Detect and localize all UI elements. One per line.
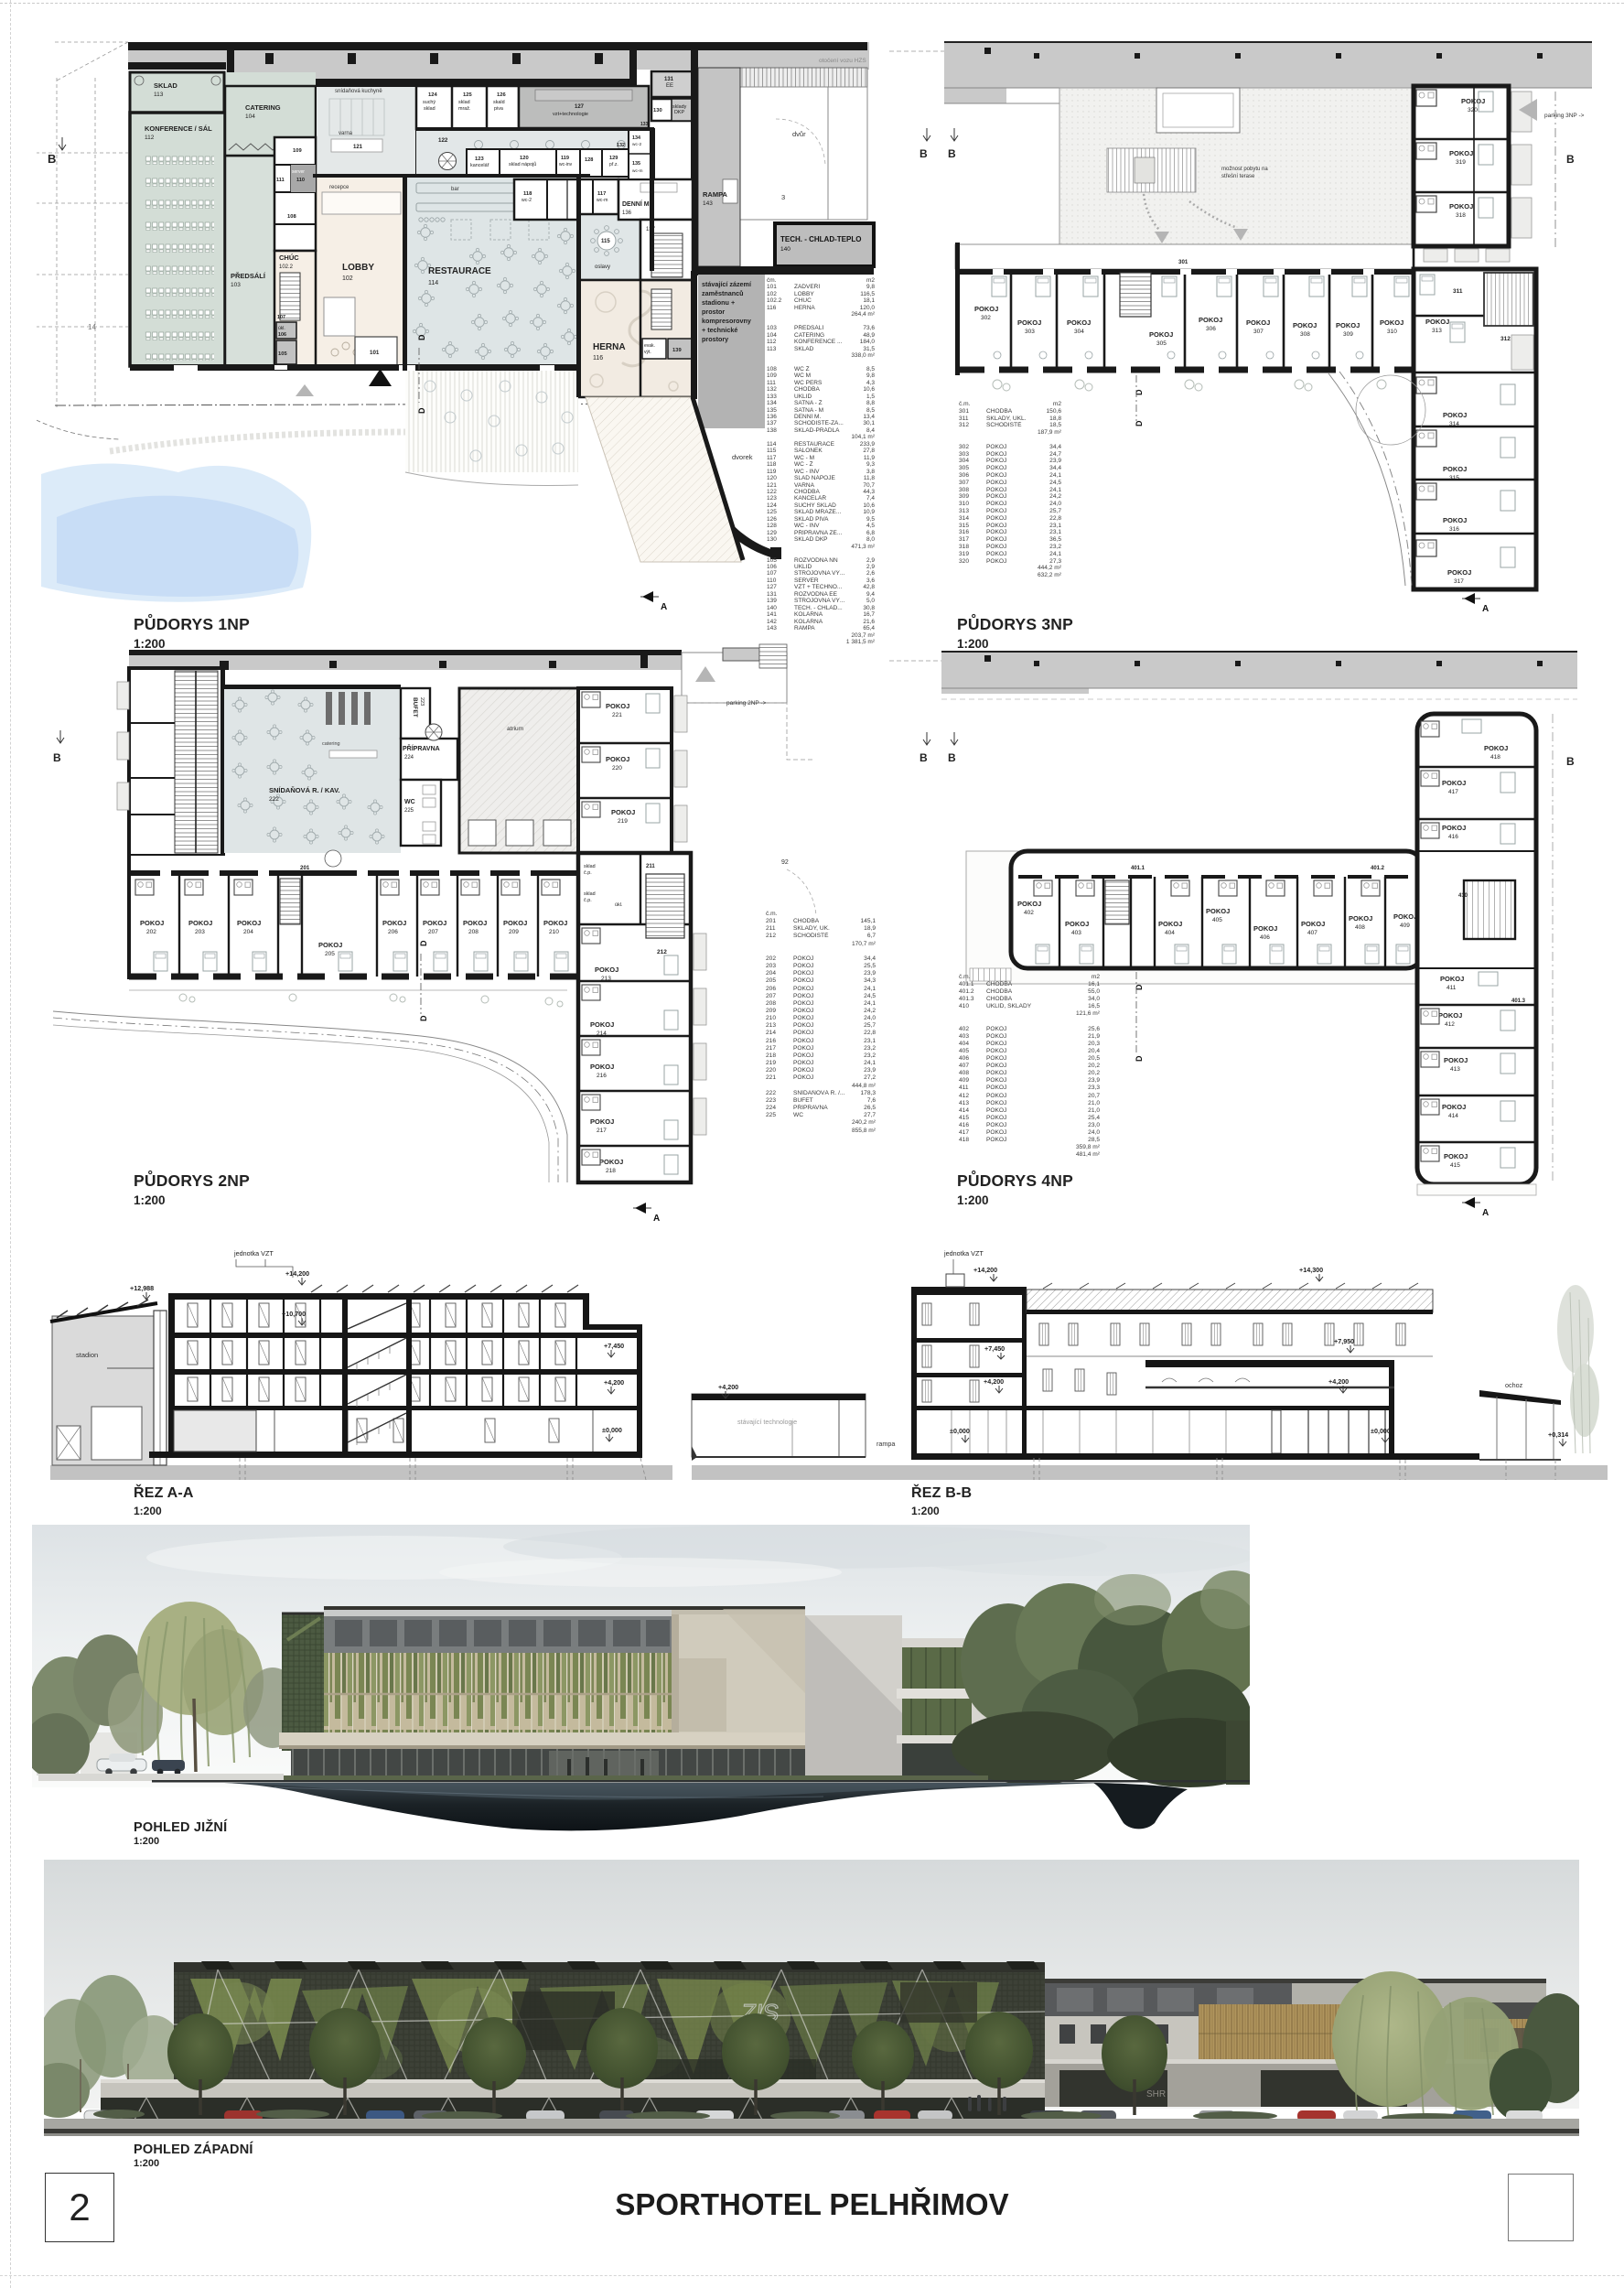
svg-text:102.2: 102.2 bbox=[279, 264, 294, 270]
svg-text:POKOJ: POKOJ bbox=[423, 919, 446, 927]
svg-text:POKOJ: POKOJ bbox=[237, 919, 261, 927]
svg-text:č.p.: č.p. bbox=[584, 898, 592, 903]
svg-text:124: 124 bbox=[428, 92, 437, 98]
svg-text:př.z.: př.z. bbox=[609, 162, 618, 167]
svg-text:POKOJ: POKOJ bbox=[1442, 1103, 1466, 1111]
svg-text:sklad: sklad bbox=[584, 891, 596, 897]
svg-text:POKOJ: POKOJ bbox=[1158, 920, 1182, 928]
svg-text:POKOJ: POKOJ bbox=[590, 1117, 614, 1126]
svg-text:POKOJ: POKOJ bbox=[1246, 318, 1270, 327]
svg-text:POKOJ: POKOJ bbox=[1443, 465, 1467, 473]
svg-text:3: 3 bbox=[781, 193, 785, 201]
svg-text:135: 135 bbox=[632, 161, 640, 167]
svg-text:+0,314: +0,314 bbox=[1548, 1430, 1568, 1439]
svg-text:219: 219 bbox=[618, 818, 628, 825]
svg-text:B: B bbox=[1566, 153, 1575, 166]
svg-text:B: B bbox=[948, 751, 956, 764]
svg-text:RESTAURACE: RESTAURACE bbox=[428, 266, 491, 276]
svg-text:320: 320 bbox=[1468, 107, 1478, 113]
svg-text:+7,450: +7,450 bbox=[984, 1344, 1005, 1353]
svg-text:B: B bbox=[948, 147, 956, 160]
svg-text:312: 312 bbox=[1500, 336, 1511, 342]
svg-text:catering: catering bbox=[322, 741, 340, 747]
svg-text:±0,000: ±0,000 bbox=[1371, 1427, 1391, 1435]
svg-text:vzt+technologie: vzt+technologie bbox=[553, 112, 588, 117]
svg-text:119: 119 bbox=[561, 156, 569, 161]
svg-text:POKOJ: POKOJ bbox=[1301, 920, 1325, 928]
svg-text:POKOJ: POKOJ bbox=[1443, 411, 1467, 419]
svg-text:140: 140 bbox=[780, 246, 790, 253]
svg-text:A: A bbox=[1482, 1208, 1489, 1218]
svg-text:sklad: sklad bbox=[584, 864, 596, 869]
svg-text:108: 108 bbox=[287, 214, 296, 220]
svg-text:jednotka VZT: jednotka VZT bbox=[233, 1249, 274, 1257]
svg-text:skald: skald bbox=[493, 100, 505, 105]
svg-text:jednotka VZT: jednotka VZT bbox=[943, 1249, 984, 1257]
svg-text:POKOJ: POKOJ bbox=[1206, 907, 1230, 915]
svg-text:317: 317 bbox=[1454, 578, 1464, 585]
svg-text:B: B bbox=[920, 147, 928, 160]
svg-text:206: 206 bbox=[388, 929, 398, 935]
svg-text:±0,000: ±0,000 bbox=[602, 1426, 622, 1434]
svg-text:+14,200: +14,200 bbox=[973, 1266, 997, 1274]
svg-text:POKOJ: POKOJ bbox=[606, 702, 629, 710]
svg-text:CHÚC: CHÚC bbox=[279, 254, 299, 262]
svg-text:POKOJ: POKOJ bbox=[1449, 202, 1473, 210]
svg-text:110: 110 bbox=[296, 178, 305, 183]
svg-text:405: 405 bbox=[1212, 917, 1222, 923]
svg-text:106: 106 bbox=[278, 332, 286, 338]
svg-text:201: 201 bbox=[300, 865, 310, 871]
svg-text:suchý: suchý bbox=[423, 100, 436, 105]
svg-text:POKOJ: POKOJ bbox=[1449, 149, 1473, 157]
svg-text:213: 213 bbox=[601, 976, 611, 982]
svg-text:evak.: evak. bbox=[644, 343, 655, 349]
svg-text:101: 101 bbox=[370, 350, 380, 356]
svg-text:202: 202 bbox=[146, 929, 156, 935]
svg-text:POKOJ: POKOJ bbox=[1293, 321, 1317, 329]
svg-text:133: 133 bbox=[640, 122, 649, 127]
svg-text:WC: WC bbox=[404, 799, 415, 805]
svg-text:BUFET: BUFET bbox=[412, 697, 418, 718]
svg-text:402: 402 bbox=[1024, 910, 1034, 916]
svg-text:POKOJ: POKOJ bbox=[974, 305, 998, 313]
svg-text:možnost pobytu na: možnost pobytu na bbox=[1221, 167, 1268, 172]
svg-text:210: 210 bbox=[549, 929, 559, 935]
svg-text:223: 223 bbox=[419, 697, 425, 706]
svg-text:POKOJ: POKOJ bbox=[1444, 1152, 1468, 1160]
svg-text:102: 102 bbox=[342, 275, 353, 282]
svg-text:POKOJ: POKOJ bbox=[318, 941, 342, 949]
svg-text:217: 217 bbox=[597, 1128, 607, 1134]
svg-text:411: 411 bbox=[1447, 985, 1457, 991]
svg-text:PŘEDSÁLÍ: PŘEDSÁLÍ bbox=[231, 272, 266, 280]
svg-text:B: B bbox=[1566, 755, 1575, 768]
svg-text:POKOJ: POKOJ bbox=[611, 808, 635, 816]
svg-text:POKOJ: POKOJ bbox=[1253, 924, 1277, 933]
svg-text:POKOJ: POKOJ bbox=[543, 919, 567, 927]
svg-text:209: 209 bbox=[509, 929, 519, 935]
svg-text:wc-m: wc-m bbox=[632, 169, 642, 174]
svg-text:207: 207 bbox=[428, 929, 438, 935]
svg-text:POKOJ: POKOJ bbox=[1336, 321, 1360, 329]
svg-text:+ technické: + technické bbox=[702, 326, 737, 334]
svg-text:±0,000: ±0,000 bbox=[950, 1427, 970, 1435]
svg-text:POKOJ: POKOJ bbox=[1199, 316, 1222, 324]
svg-text:č.p.: č.p. bbox=[584, 870, 592, 876]
svg-text:POKOJ: POKOJ bbox=[1438, 1011, 1462, 1020]
svg-text:303: 303 bbox=[1025, 329, 1035, 335]
svg-text:111: 111 bbox=[276, 178, 285, 183]
svg-text:kancelář: kancelář bbox=[470, 163, 489, 168]
svg-text:zaměstnanců: zaměstnanců bbox=[702, 289, 744, 297]
svg-text:139: 139 bbox=[672, 348, 682, 353]
svg-text:stávající zázemí: stávající zázemí bbox=[702, 280, 752, 288]
svg-text:116: 116 bbox=[593, 355, 603, 362]
svg-text:204: 204 bbox=[243, 929, 253, 935]
svg-text:+14,200: +14,200 bbox=[285, 1269, 309, 1278]
svg-text:302: 302 bbox=[981, 315, 991, 321]
svg-text:306: 306 bbox=[1206, 326, 1216, 332]
svg-text:414: 414 bbox=[1448, 1113, 1458, 1119]
svg-text:piva: piva bbox=[494, 106, 503, 112]
svg-text:143: 143 bbox=[703, 200, 713, 207]
svg-text:POKOJ: POKOJ bbox=[590, 1020, 614, 1029]
svg-text:wc-m: wc-m bbox=[597, 198, 608, 203]
svg-text:401.1: 401.1 bbox=[1131, 866, 1145, 871]
svg-text:129: 129 bbox=[609, 156, 618, 161]
svg-text:211: 211 bbox=[646, 864, 655, 869]
svg-text:+7,950: +7,950 bbox=[1334, 1337, 1354, 1345]
svg-text:atrium: atrium bbox=[507, 726, 523, 732]
svg-text:úkl.: úkl. bbox=[615, 902, 622, 908]
svg-text:POKOJ: POKOJ bbox=[1442, 779, 1466, 787]
svg-text:D: D bbox=[419, 940, 428, 946]
svg-text:123: 123 bbox=[475, 156, 484, 162]
svg-text:D: D bbox=[417, 334, 426, 340]
svg-text:205: 205 bbox=[325, 951, 335, 957]
svg-text:POKOJ: POKOJ bbox=[1444, 1056, 1468, 1064]
svg-text:109: 109 bbox=[293, 148, 302, 154]
svg-text:SHR: SHR bbox=[1146, 2089, 1166, 2099]
svg-text:POKOJ: POKOJ bbox=[1440, 975, 1464, 983]
svg-text:POKOJ: POKOJ bbox=[1017, 318, 1041, 327]
svg-text:404: 404 bbox=[1165, 930, 1175, 936]
svg-text:222: 222 bbox=[269, 796, 279, 803]
svg-text:B: B bbox=[48, 152, 56, 166]
svg-text:TECH. - CHLAD-TEPLO: TECH. - CHLAD-TEPLO bbox=[780, 235, 861, 243]
svg-text:prostor: prostor bbox=[702, 308, 725, 316]
svg-text:130: 130 bbox=[653, 108, 662, 113]
svg-text:118: 118 bbox=[523, 191, 532, 197]
svg-text:134: 134 bbox=[632, 135, 640, 141]
svg-text:125: 125 bbox=[463, 92, 472, 98]
svg-text:stadionu +: stadionu + bbox=[702, 298, 735, 307]
svg-text:POKOJ: POKOJ bbox=[1393, 912, 1417, 921]
svg-text:308: 308 bbox=[1300, 331, 1310, 338]
svg-text:POKOJ: POKOJ bbox=[1067, 318, 1091, 327]
svg-text:+4,200: +4,200 bbox=[984, 1377, 1004, 1386]
svg-text:mraž.: mraž. bbox=[458, 106, 470, 112]
svg-text:225: 225 bbox=[404, 808, 414, 814]
svg-text:212: 212 bbox=[657, 949, 667, 955]
svg-text:POKOJ: POKOJ bbox=[1149, 330, 1173, 339]
svg-text:417: 417 bbox=[1448, 789, 1458, 795]
svg-text:+14,300: +14,300 bbox=[1299, 1266, 1323, 1274]
svg-text:SKLAD: SKLAD bbox=[154, 81, 177, 90]
svg-text:POKOJ: POKOJ bbox=[188, 919, 212, 927]
svg-text:A: A bbox=[1482, 604, 1489, 614]
svg-text:412: 412 bbox=[1445, 1021, 1455, 1028]
svg-text:varna: varna bbox=[339, 131, 353, 136]
svg-text:POKOJ: POKOJ bbox=[1349, 914, 1372, 923]
svg-text:415: 415 bbox=[1450, 1162, 1460, 1169]
svg-text:kompresorovny: kompresorovny bbox=[702, 317, 751, 325]
svg-text:sklad: sklad bbox=[458, 100, 470, 105]
svg-text:POKOJ: POKOJ bbox=[463, 919, 487, 927]
svg-text:B: B bbox=[920, 751, 928, 764]
svg-text:recepce: recepce bbox=[329, 185, 350, 190]
svg-text:KONFERENCE / SÁL: KONFERENCE / SÁL bbox=[145, 124, 212, 133]
svg-text:POKOJ: POKOJ bbox=[140, 919, 164, 927]
svg-text:122: 122 bbox=[438, 137, 448, 144]
svg-text:POKOJ: POKOJ bbox=[1443, 516, 1467, 524]
svg-text:POKOJ: POKOJ bbox=[1425, 318, 1449, 326]
svg-text:+7,450: +7,450 bbox=[604, 1342, 624, 1350]
svg-text:114: 114 bbox=[428, 280, 438, 286]
svg-text:316: 316 bbox=[1449, 526, 1459, 533]
svg-text:EE: EE bbox=[666, 83, 673, 89]
svg-text:407: 407 bbox=[1307, 930, 1317, 936]
svg-text:úkl.: úkl. bbox=[278, 326, 285, 331]
svg-text:117: 117 bbox=[597, 191, 606, 197]
svg-text:311: 311 bbox=[1453, 288, 1463, 295]
svg-text:132: 132 bbox=[617, 143, 625, 148]
svg-text:D: D bbox=[1135, 420, 1144, 426]
svg-text:315: 315 bbox=[1449, 475, 1459, 481]
svg-text:103: 103 bbox=[231, 282, 241, 288]
svg-text:D: D bbox=[1135, 984, 1144, 990]
svg-text:112: 112 bbox=[145, 135, 155, 141]
svg-text:sklad nápojů: sklad nápojů bbox=[509, 161, 536, 167]
svg-text:92: 92 bbox=[781, 859, 789, 866]
svg-text:POKOJ: POKOJ bbox=[606, 755, 629, 763]
svg-text:rampa: rampa bbox=[877, 1440, 895, 1448]
svg-text:136: 136 bbox=[622, 210, 632, 216]
svg-text:POKOJ: POKOJ bbox=[382, 919, 406, 927]
svg-text:POKOJ: POKOJ bbox=[1380, 318, 1404, 327]
svg-text:výt.: výt. bbox=[644, 350, 651, 355]
svg-text:PŘÍPRAVNA: PŘÍPRAVNA bbox=[403, 744, 440, 752]
svg-text:+10,700: +10,700 bbox=[282, 1310, 306, 1318]
svg-text:107: 107 bbox=[277, 315, 285, 320]
svg-text:B: B bbox=[53, 751, 61, 764]
svg-text:wc-2: wc-2 bbox=[632, 142, 641, 147]
svg-text:prostory: prostory bbox=[702, 335, 728, 343]
svg-text:D: D bbox=[417, 407, 426, 414]
svg-text:301: 301 bbox=[1178, 259, 1188, 265]
svg-text:218: 218 bbox=[606, 1168, 616, 1174]
svg-text:309: 309 bbox=[1343, 331, 1353, 338]
svg-text:střešní terase: střešní terase bbox=[1221, 174, 1255, 179]
svg-text:RAMPA: RAMPA bbox=[703, 190, 728, 199]
svg-text:+4,200: +4,200 bbox=[718, 1383, 738, 1391]
svg-text:127: 127 bbox=[575, 104, 585, 110]
svg-text:LOBBY: LOBBY bbox=[342, 263, 374, 273]
svg-text:stadion: stadion bbox=[76, 1351, 98, 1359]
svg-text:server: server bbox=[292, 169, 305, 175]
svg-text:314: 314 bbox=[1449, 421, 1459, 427]
svg-text:POKOJ: POKOJ bbox=[1447, 568, 1471, 577]
svg-text:POKOJ: POKOJ bbox=[1484, 744, 1508, 752]
svg-text:oslavy: oslavy bbox=[595, 264, 610, 270]
svg-text:CATERING: CATERING bbox=[245, 103, 281, 112]
svg-text:14: 14 bbox=[88, 323, 96, 331]
svg-text:D: D bbox=[1135, 389, 1144, 395]
svg-text:parking 2NP ->: parking 2NP -> bbox=[726, 700, 767, 707]
svg-text:sklad: sklad bbox=[424, 106, 436, 112]
svg-text:128: 128 bbox=[585, 157, 593, 163]
svg-text:POKOJ: POKOJ bbox=[599, 1158, 623, 1166]
svg-text:otočení vozu HZS: otočení vozu HZS bbox=[819, 58, 866, 64]
svg-text:D: D bbox=[419, 1015, 428, 1021]
svg-text:216: 216 bbox=[597, 1073, 607, 1079]
svg-text:305: 305 bbox=[1156, 340, 1167, 347]
svg-text:POKOJ: POKOJ bbox=[590, 1063, 614, 1071]
svg-text:401.3: 401.3 bbox=[1511, 998, 1526, 1004]
svg-text:SNÍDAŇOVÁ R. / KAV.: SNÍDAŇOVÁ R. / KAV. bbox=[269, 786, 340, 794]
svg-text:POKOJ: POKOJ bbox=[1065, 920, 1089, 928]
svg-text:wc-inv: wc-inv bbox=[559, 162, 573, 167]
svg-text:401.2: 401.2 bbox=[1371, 866, 1385, 871]
svg-text:203: 203 bbox=[195, 929, 205, 935]
svg-text:104: 104 bbox=[245, 113, 255, 120]
svg-text:A: A bbox=[653, 1214, 660, 1224]
svg-text:307: 307 bbox=[1253, 329, 1264, 335]
svg-text:POKOJ: POKOJ bbox=[1442, 824, 1466, 832]
svg-text:bar: bar bbox=[451, 187, 459, 192]
svg-text:208: 208 bbox=[468, 929, 479, 935]
svg-text:POKOJ: POKOJ bbox=[503, 919, 527, 927]
svg-text:310: 310 bbox=[1387, 329, 1397, 335]
svg-text:126: 126 bbox=[497, 92, 506, 98]
svg-text:POKOJ: POKOJ bbox=[1017, 900, 1041, 908]
svg-text:318: 318 bbox=[1456, 212, 1466, 219]
svg-text:224: 224 bbox=[404, 755, 414, 761]
svg-text:413: 413 bbox=[1450, 1066, 1460, 1073]
svg-text:416: 416 bbox=[1448, 834, 1458, 840]
svg-text:A: A bbox=[661, 602, 667, 612]
svg-text:313: 313 bbox=[1432, 328, 1442, 334]
svg-text:304: 304 bbox=[1074, 329, 1084, 335]
svg-text:stávající technologie: stávající technologie bbox=[737, 1418, 797, 1426]
svg-text:POKOJ: POKOJ bbox=[595, 966, 618, 974]
svg-text:120: 120 bbox=[520, 156, 529, 161]
svg-text:214: 214 bbox=[597, 1031, 607, 1037]
svg-text:403: 403 bbox=[1071, 930, 1081, 936]
svg-text:410: 410 bbox=[1458, 893, 1468, 899]
svg-text:DKP: DKP bbox=[674, 110, 684, 115]
svg-text:220: 220 bbox=[612, 765, 622, 772]
svg-text:dvorek: dvorek bbox=[732, 453, 753, 461]
svg-text:parking 3NP ->: parking 3NP -> bbox=[1544, 113, 1585, 119]
svg-text:319: 319 bbox=[1456, 159, 1466, 166]
svg-text:snídaňová kuchyně: snídaňová kuchyně bbox=[335, 89, 382, 94]
svg-text:121: 121 bbox=[353, 145, 363, 150]
svg-text:115: 115 bbox=[601, 239, 610, 244]
svg-text:221: 221 bbox=[612, 712, 622, 718]
svg-text:POKOJ: POKOJ bbox=[1461, 97, 1485, 105]
svg-text:DENNÍ M.: DENNÍ M. bbox=[622, 200, 651, 208]
svg-text:409: 409 bbox=[1400, 923, 1410, 929]
svg-text:113: 113 bbox=[154, 92, 164, 98]
svg-text:wc-2: wc-2 bbox=[522, 198, 532, 203]
svg-text:ochoz: ochoz bbox=[1505, 1381, 1523, 1389]
svg-text:418: 418 bbox=[1490, 754, 1500, 761]
svg-text:D: D bbox=[1135, 1055, 1144, 1062]
svg-text:+4,200: +4,200 bbox=[604, 1378, 624, 1387]
svg-text:406: 406 bbox=[1260, 934, 1270, 941]
svg-text:408: 408 bbox=[1355, 924, 1365, 931]
svg-text:105: 105 bbox=[278, 351, 287, 357]
svg-text:131: 131 bbox=[664, 77, 674, 82]
svg-text:dvůr: dvůr bbox=[792, 130, 806, 138]
svg-text:HERNA: HERNA bbox=[593, 342, 626, 352]
svg-text:+4,200: +4,200 bbox=[1328, 1377, 1349, 1386]
svg-text:+12,988: +12,988 bbox=[130, 1284, 154, 1292]
